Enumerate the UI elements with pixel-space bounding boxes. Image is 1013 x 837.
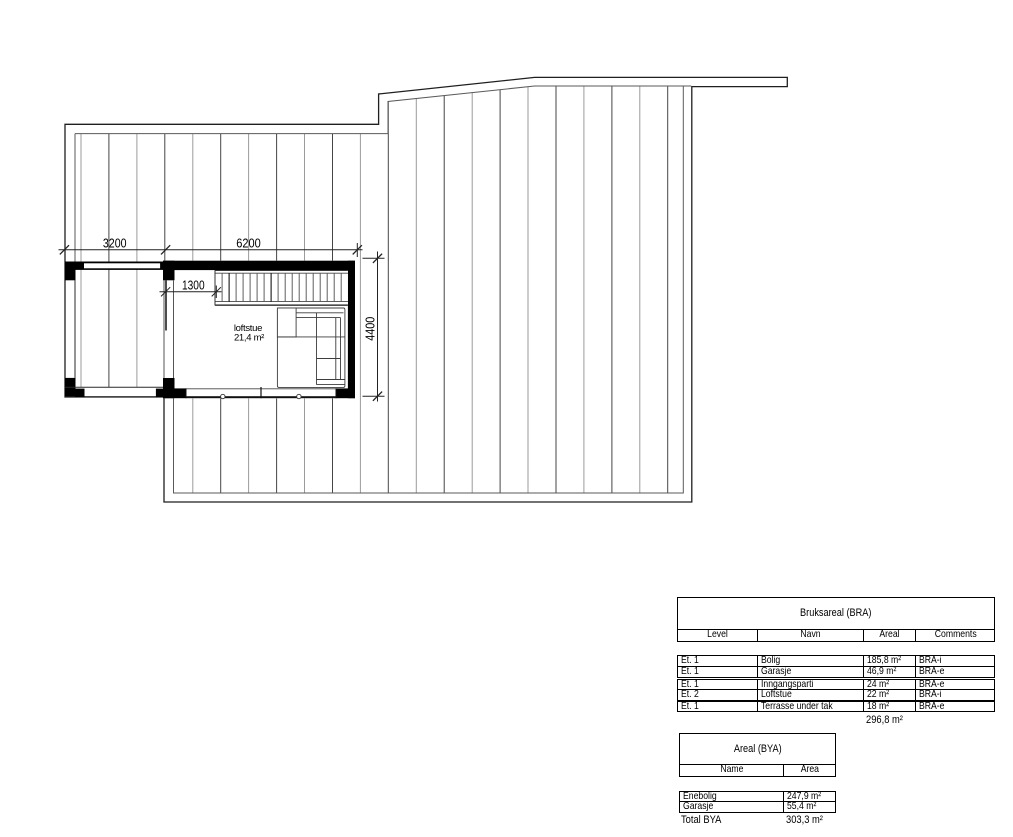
svg-text:3200: 3200 (103, 236, 127, 251)
svg-text:1300: 1300 (182, 278, 205, 293)
svg-text:21,4 m²: 21,4 m² (234, 333, 264, 344)
svg-text:4400: 4400 (362, 317, 377, 341)
svg-text:6200: 6200 (236, 236, 261, 251)
